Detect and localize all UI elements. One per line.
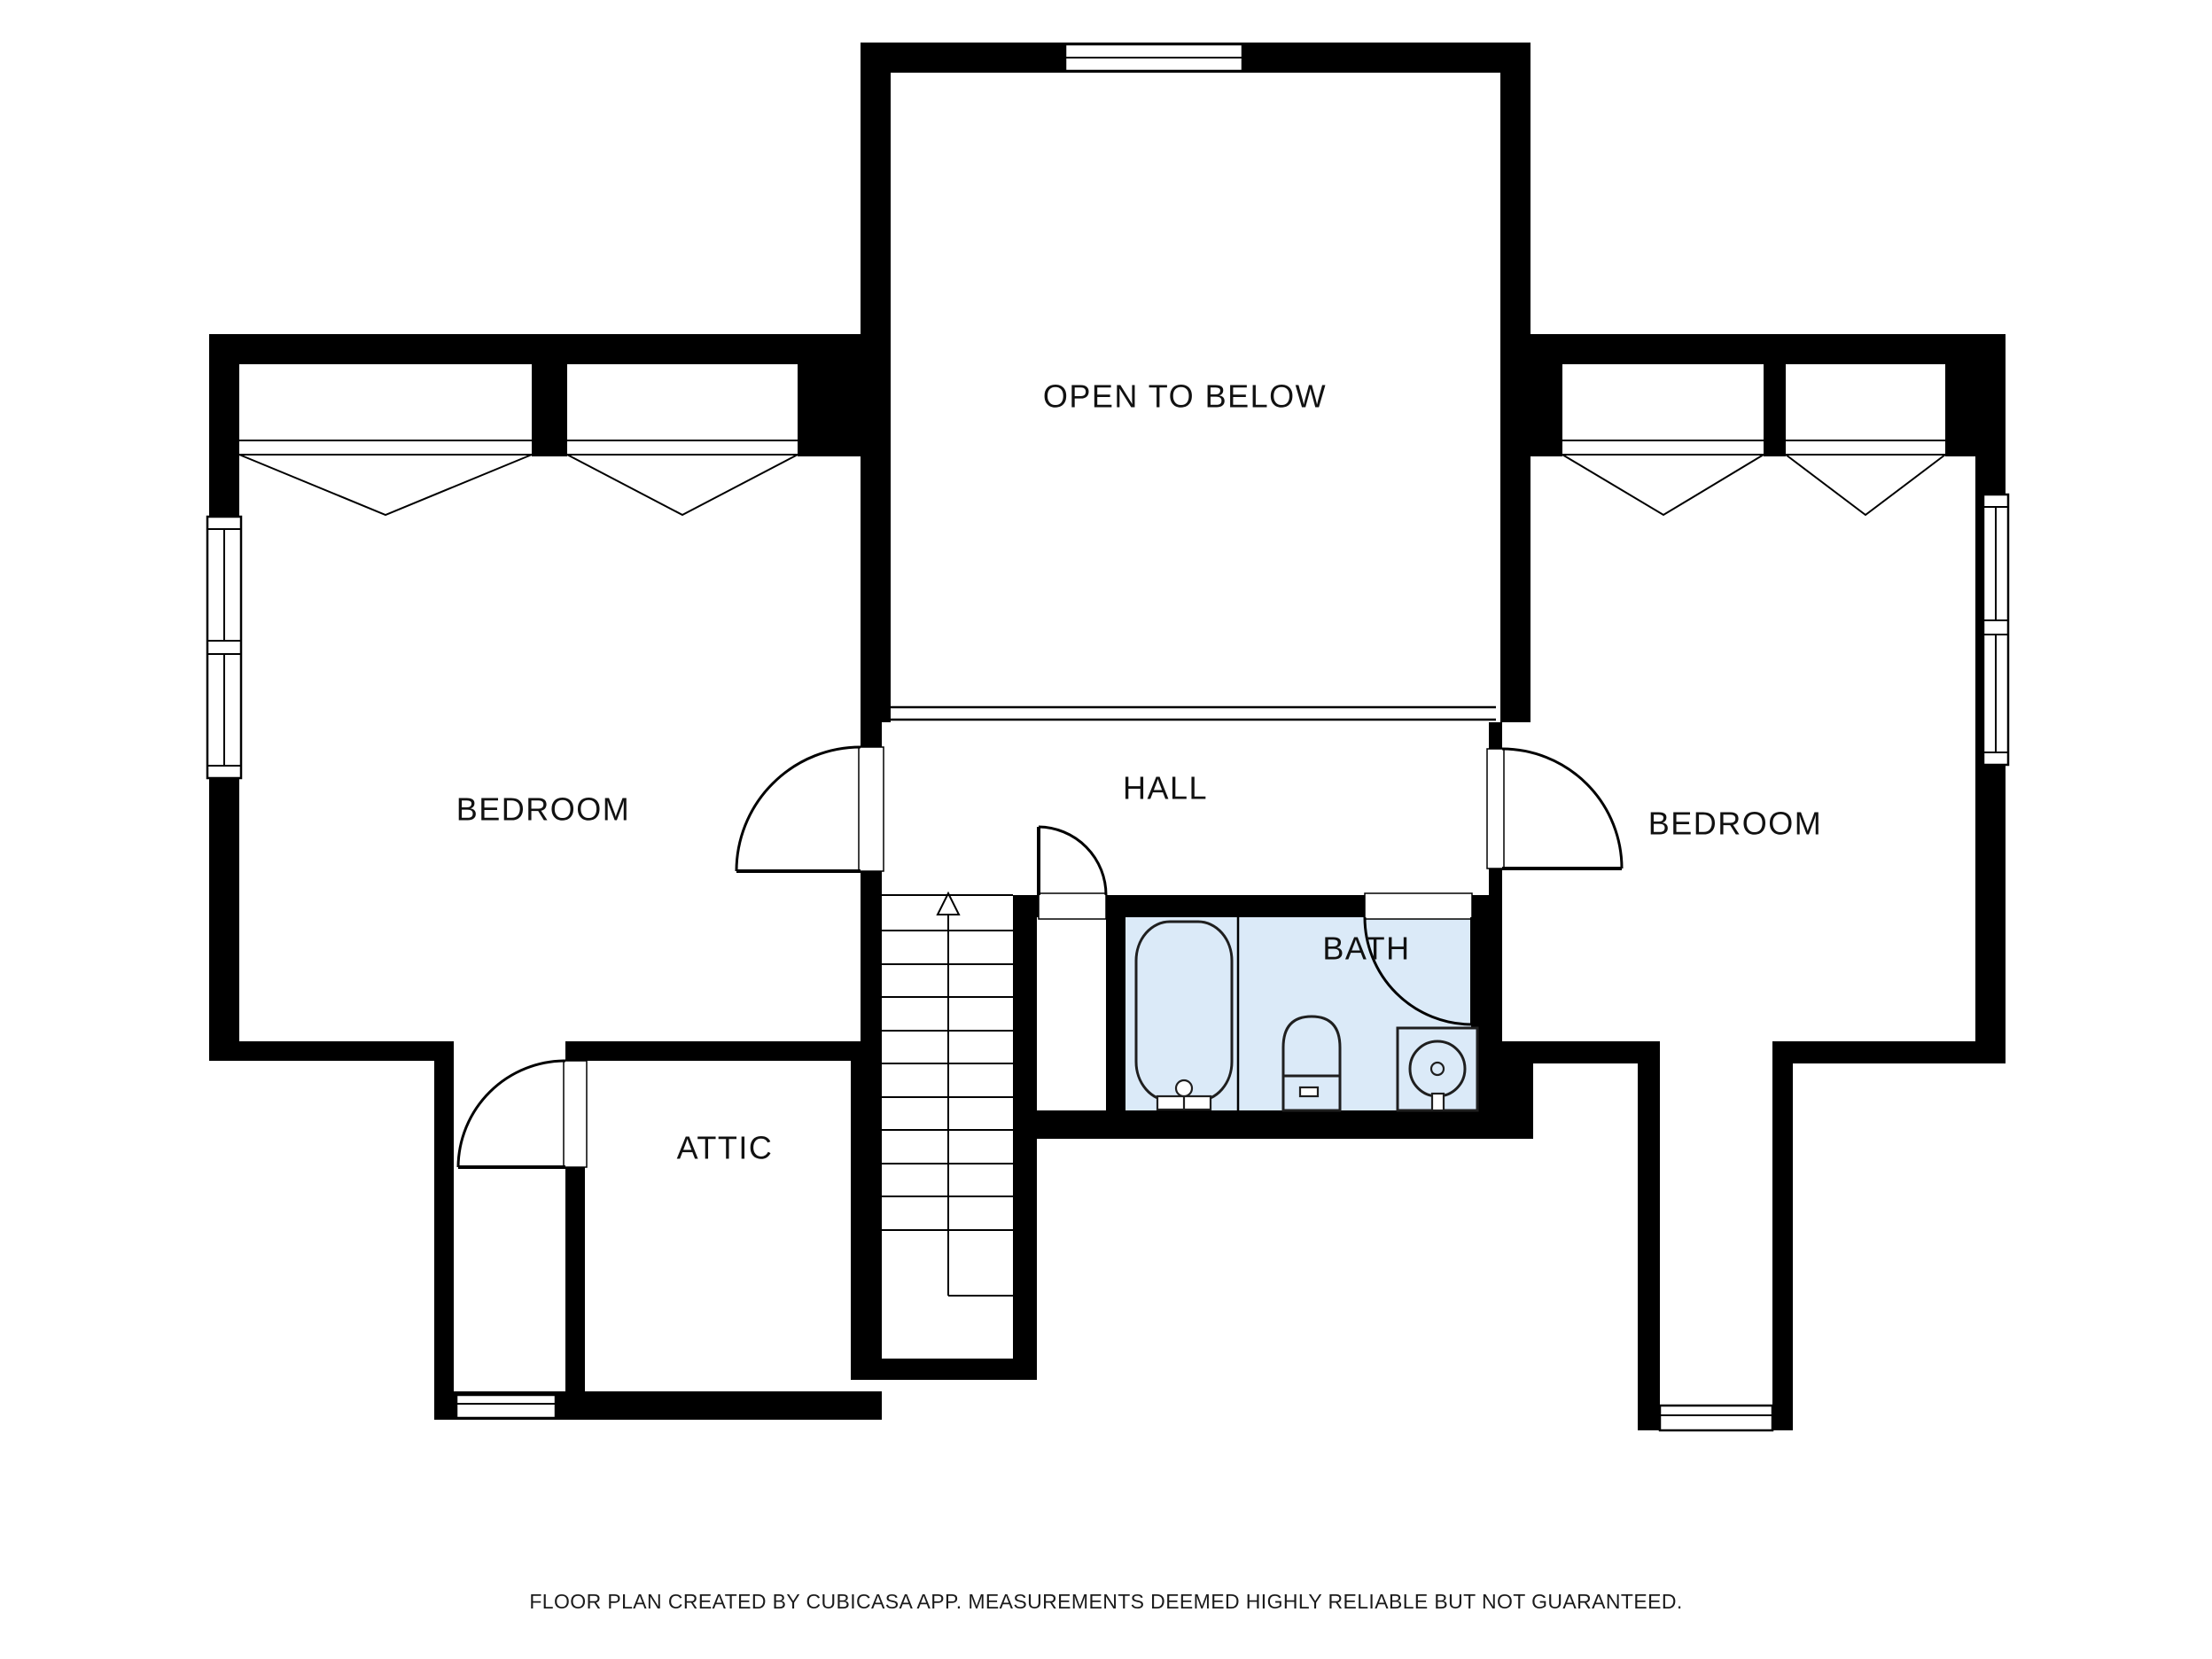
door-attic [458,1061,587,1167]
window-open-to-below-top [1065,44,1242,71]
wall-bedroom-right-door-lower [1489,868,1502,917]
door-arc [458,1061,565,1167]
ceiling-slope-chevron-icon [239,455,532,515]
wall-nook-right-left [1638,1041,1660,1429]
wall-stairwell-left [851,1041,882,1380]
walls [209,43,2006,1430]
sink [1398,1028,1477,1110]
wall-closet-right [1106,895,1125,1110]
room-label-attic: ATTIC [677,1130,774,1166]
ceiling-slope-chevron-icon [567,455,798,515]
bathtub-faucet-icon [1176,1080,1192,1096]
wall-dormer-pier [1945,364,1975,456]
wall-right-wing-top [1500,334,2006,364]
wall-otb-right [1500,43,1530,722]
wall-dormer-pier [1530,364,1562,456]
toilet [1283,1016,1340,1110]
stairs-up-arrow-icon [938,893,959,915]
door-arc [1502,749,1622,868]
staircase [882,893,1013,1296]
wall-dormer-pier [532,364,567,456]
toilet-flush-button-icon [1300,1087,1318,1096]
wall-dormer-pier [1764,364,1786,456]
room-label-bedroom-right: BEDROOM [1648,806,1823,842]
wall-otb-left [861,43,891,722]
door-arc [736,747,861,871]
door-hall-closet [1039,827,1106,919]
floor-plan-svg: OPEN TO BELOW BEDROOM HALL BEDROOM BATH … [0,0,2212,1659]
door-bedroom-left [736,747,884,871]
wall-bath-bottom [1013,1110,1533,1139]
room-label-bath: BATH [1322,931,1410,967]
window-bedroom-left [207,517,241,778]
wall-nook-left [434,1041,454,1420]
wall-attic-top [565,1041,882,1061]
wall-attic-left [565,1167,585,1391]
ceiling-slope-chevron-icon [1562,455,1764,515]
window-nook-right [1660,1406,1772,1430]
room-label-bedroom-left: BEDROOM [456,791,631,828]
wall-bedroom-left-door-lower [861,871,882,1041]
window-bedroom-right [1983,495,2008,765]
railing-open-to-below [886,707,1496,720]
wall-bedroom-left-door-upper [861,722,882,747]
wall-bedroom-left-bottom [209,1041,454,1061]
bathtub [1136,922,1232,1110]
wall-bedroom-right-bottom [1502,1041,1638,1063]
room-label-open-to-below: OPEN TO BELOW [1043,378,1327,415]
ceiling-slope-chevron-icon [1786,455,1945,515]
wall-left-wing-top [209,334,891,364]
wall-stairwell-bottom [882,1359,1037,1380]
wall-bedroom-right-bottom [1772,1041,2006,1063]
dormer-sills-and-chevrons [239,440,1945,515]
footer-disclaimer: FLOOR PLAN CREATED BY CUBICASA APP. MEAS… [529,1590,1682,1613]
door-arc [1039,827,1106,895]
wall-dormer-pier [798,364,861,456]
wall-hall-bottom [1106,895,1365,917]
door-bedroom-right [1487,749,1622,868]
wall-nook-right-right [1772,1041,1793,1429]
wall-bedroom-right-door-upper [1489,722,1502,749]
window-nook-left [456,1395,556,1418]
room-label-hall: HALL [1123,770,1208,806]
wall-hall-bottom [1013,895,1039,917]
